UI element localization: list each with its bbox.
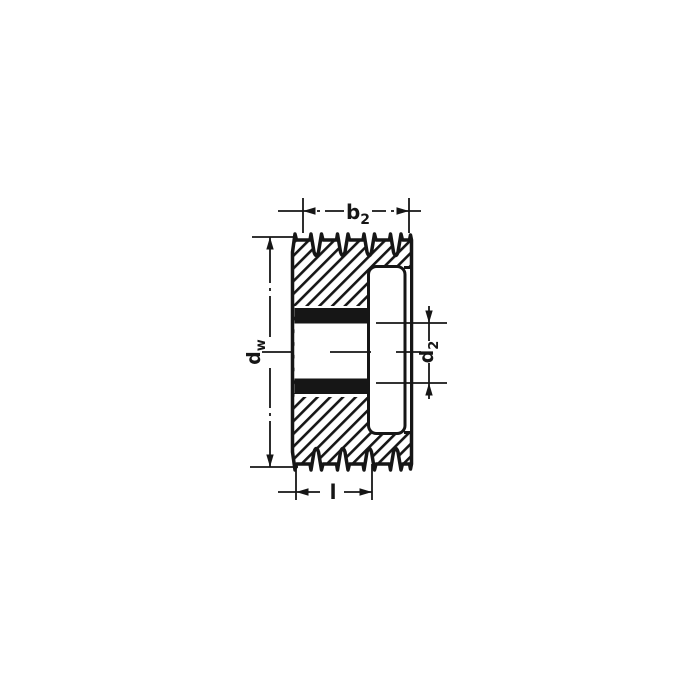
b2-arrow-right xyxy=(397,207,410,214)
dimension-dw: dw xyxy=(243,237,298,467)
b2-arrow-left xyxy=(303,207,316,214)
taper-bush-band-upper xyxy=(295,308,370,324)
l-arrow-left xyxy=(296,488,309,495)
drawing-page: b2 dw d2 xyxy=(0,0,700,700)
l-arrow-right xyxy=(360,488,373,495)
d2-arrow-top xyxy=(425,311,432,324)
label-b2: b2 xyxy=(346,200,370,228)
dimension-b2: b2 xyxy=(278,198,421,233)
pulley-technical-drawing: b2 dw d2 xyxy=(0,0,700,700)
hub-recess-window xyxy=(369,267,406,434)
dw-arrow-bottom xyxy=(266,455,273,468)
label-d2: d2 xyxy=(416,341,442,364)
label-l: l xyxy=(330,480,337,504)
dimension-l: l xyxy=(278,464,372,504)
d2-arrow-bottom xyxy=(425,383,432,396)
dw-arrow-top xyxy=(266,237,273,250)
taper-bush-band-lower xyxy=(295,379,370,395)
label-dw: dw xyxy=(243,339,269,365)
